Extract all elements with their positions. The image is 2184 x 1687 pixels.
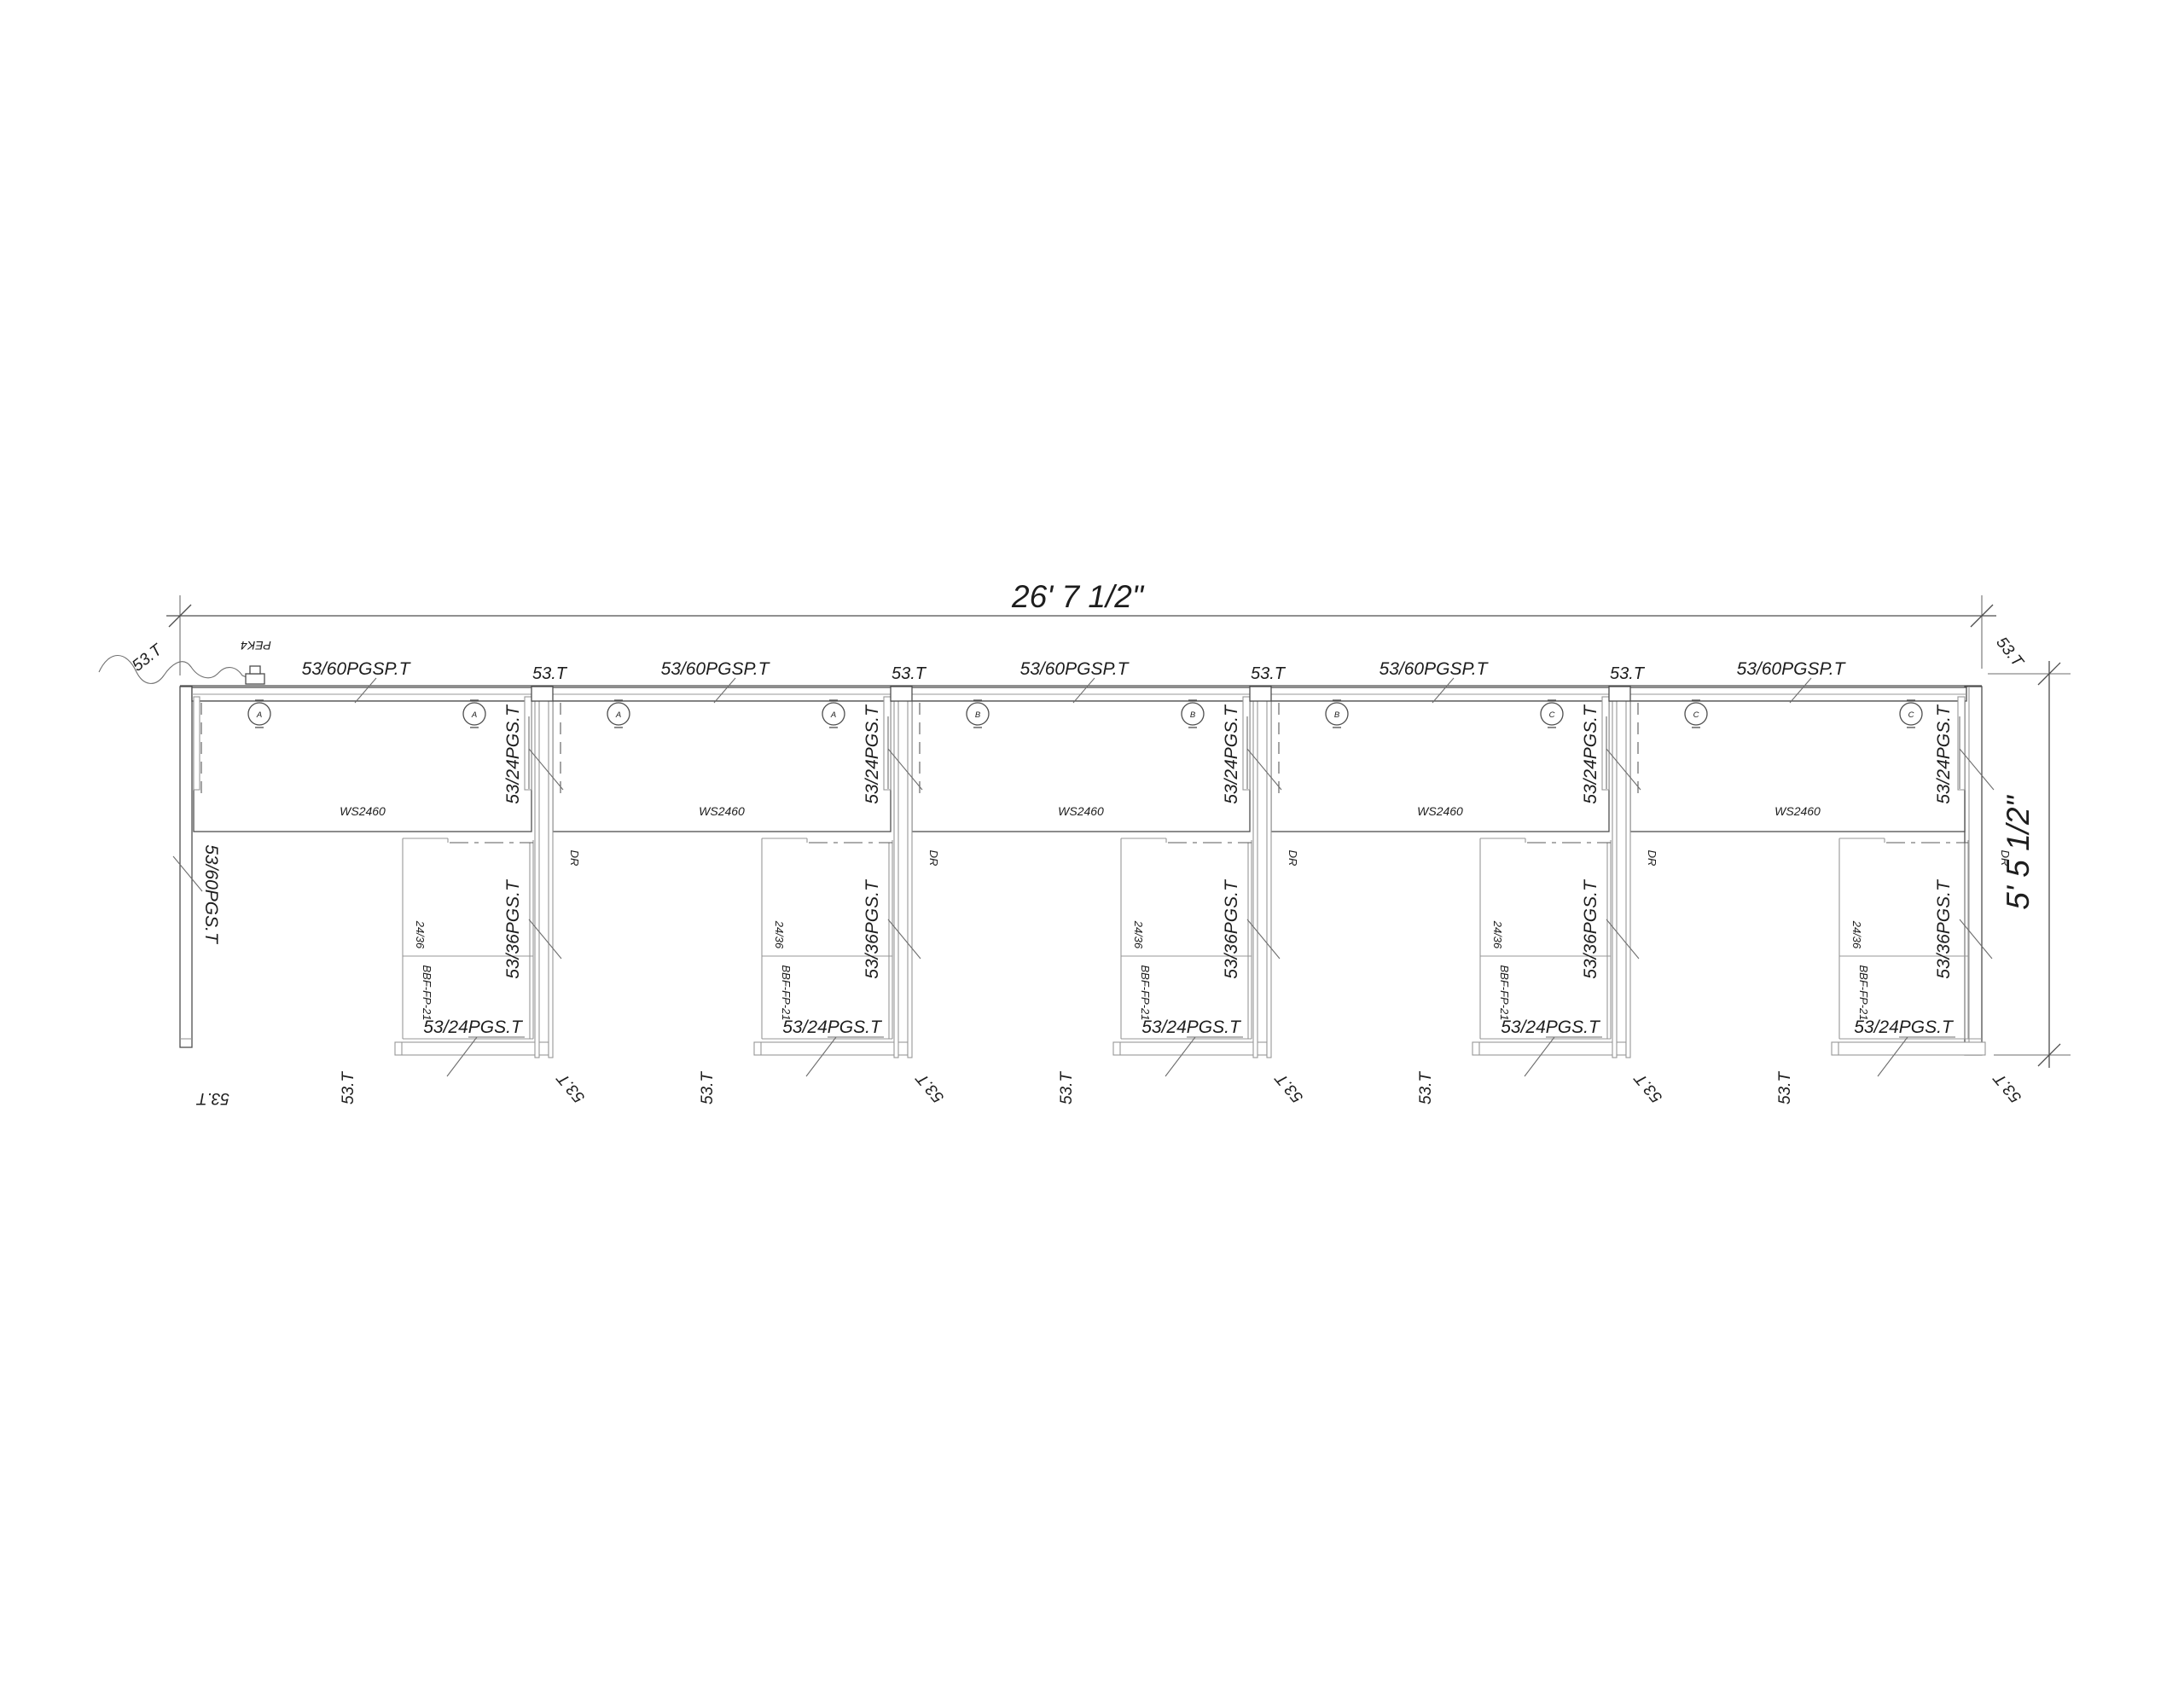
return-panel-label: 53/24PGS.T bbox=[423, 1017, 524, 1037]
divider-end bbox=[1243, 697, 1250, 790]
pedestal-box-label: 24/36 bbox=[1850, 920, 1863, 949]
bottom-connector-tag-mirror: 53.T bbox=[913, 1069, 948, 1106]
grommet-letter: B bbox=[1334, 710, 1340, 720]
divider-end bbox=[1958, 697, 1965, 790]
drawer-label: DR bbox=[927, 850, 940, 867]
drawer-label: DR bbox=[1646, 850, 1658, 867]
divider-upper-label: 53/24PGS.T bbox=[503, 704, 523, 804]
worksurface-label: WS2460 bbox=[1417, 804, 1463, 818]
top-panel-label: 53/60PGSP.T bbox=[302, 659, 412, 679]
divider-upper-label: 53/24PGS.T bbox=[863, 704, 882, 804]
power-entry-plug bbox=[250, 666, 260, 674]
divider-end bbox=[194, 697, 200, 790]
overall-depth-dim: 5' 5 1/2" bbox=[2001, 794, 2036, 909]
overall-width-dim: 26' 7 1/2" bbox=[1011, 579, 1145, 614]
bottom-connector-tag: 53.T bbox=[1776, 1071, 1794, 1104]
worksurface-label: WS2460 bbox=[699, 804, 745, 818]
bottom-connector-tag: 53.T bbox=[1058, 1071, 1076, 1104]
return-panel-label: 53/24PGS.T bbox=[1854, 1017, 1955, 1037]
grommet-letter: A bbox=[471, 710, 477, 720]
drawer-label: DR bbox=[1287, 850, 1299, 867]
divider-lower-label: 53/36PGS.T bbox=[503, 878, 523, 979]
leader bbox=[1247, 919, 1280, 959]
grommet-letter: A bbox=[830, 710, 836, 720]
grommet-letter: A bbox=[615, 710, 621, 720]
grommet-letter: B bbox=[975, 710, 981, 720]
divider-end bbox=[884, 697, 891, 790]
divider-panel bbox=[1612, 701, 1617, 1058]
power-entry-label: PEK4 bbox=[241, 639, 271, 652]
panel-connector bbox=[891, 687, 912, 701]
divider-upper-label: 53/24PGS.T bbox=[1581, 704, 1600, 804]
pedestal-file-label: BBF-FP-21 bbox=[1857, 965, 1870, 1020]
divider-upper-label: 53/24PGS.T bbox=[1222, 704, 1241, 804]
top-panel-label: 53/60PGSP.T bbox=[1737, 659, 1847, 679]
bottom-connector-tag: 53.T bbox=[1417, 1071, 1435, 1104]
bottom-connector-tag-mirror: 53.T bbox=[554, 1069, 589, 1106]
divider-panel bbox=[1267, 701, 1271, 1058]
cable-tag: 53.T bbox=[129, 641, 166, 675]
grommet-letter: B bbox=[1190, 710, 1196, 720]
pedestal-box-label: 24/36 bbox=[1491, 920, 1504, 949]
pedestal-box-label: 24/36 bbox=[773, 920, 786, 949]
divider-lower-label: 53/36PGS.T bbox=[1934, 878, 1954, 979]
divider-end bbox=[525, 697, 531, 790]
bottom-connector-tag-mirror: 53.T bbox=[1272, 1069, 1307, 1106]
grommet-letter: C bbox=[1908, 710, 1914, 720]
top-panel-label: 53/60PGSP.T bbox=[1380, 659, 1490, 679]
bottom-connector-tag-mirror: 53.T bbox=[1990, 1069, 2025, 1106]
grommet-letter: A bbox=[256, 710, 262, 720]
leader bbox=[888, 919, 921, 959]
return-panel bbox=[1832, 1042, 1985, 1055]
leader bbox=[1606, 919, 1639, 959]
bottom-connector-tag-mirror: 53.T bbox=[1631, 1069, 1666, 1106]
divider-lower-label: 53/36PGS.T bbox=[1222, 878, 1241, 979]
end-panel-right bbox=[1965, 687, 1982, 1055]
grommet-letter: C bbox=[1549, 710, 1555, 720]
pedestal-box-label: 24/36 bbox=[1132, 920, 1145, 949]
end-panel-label: 53/60PGS.T bbox=[201, 844, 221, 945]
workstation-plan-drawing: 26' 7 1/2"WS2460AA53/60PGSP.T24/36BBF-FP… bbox=[0, 0, 2184, 1687]
divider-panel bbox=[535, 701, 539, 1058]
connector-tag: 53.T bbox=[532, 664, 568, 683]
corner-connector-tag: 53.T bbox=[1992, 634, 2027, 671]
bottom-connector-tag: 53.T bbox=[196, 1089, 229, 1107]
divider-upper-label: 53/24PGS.T bbox=[1934, 704, 1954, 804]
divider-panel bbox=[1626, 701, 1630, 1058]
top-panel-label: 53/60PGSP.T bbox=[661, 659, 771, 679]
worksurface-label: WS2460 bbox=[1774, 804, 1821, 818]
connector-tag: 53.T bbox=[1251, 664, 1287, 683]
divider-panel bbox=[908, 701, 912, 1058]
panel-connector bbox=[1250, 687, 1271, 701]
divider-panel bbox=[894, 701, 898, 1058]
return-panel-label: 53/24PGS.T bbox=[1501, 1017, 1601, 1037]
bottom-connector-tag: 53.T bbox=[340, 1071, 357, 1104]
bottom-connector-tag: 53.T bbox=[699, 1071, 717, 1104]
panel-connector bbox=[531, 687, 553, 701]
pedestal-file-label: BBF-FP-21 bbox=[421, 965, 433, 1020]
divider-panel bbox=[549, 701, 553, 1058]
connector-tag: 53.T bbox=[892, 664, 927, 683]
panel-connector bbox=[1609, 687, 1630, 701]
drawer-label: DR bbox=[568, 850, 581, 867]
power-cable-icon bbox=[99, 656, 247, 684]
divider-lower-label: 53/36PGS.T bbox=[1581, 878, 1600, 979]
pedestal-file-label: BBF-FP-21 bbox=[780, 965, 793, 1020]
divider-end bbox=[1602, 697, 1609, 790]
pedestal-box-label: 24/36 bbox=[414, 920, 427, 949]
pedestal-file-label: BBF-FP-21 bbox=[1139, 965, 1152, 1020]
return-panel-label: 53/24PGS.T bbox=[782, 1017, 883, 1037]
return-panel-label: 53/24PGS.T bbox=[1141, 1017, 1242, 1037]
top-panel-label: 53/60PGSP.T bbox=[1020, 659, 1130, 679]
pedestal-file-label: BBF-FP-21 bbox=[1498, 965, 1511, 1020]
power-entry bbox=[246, 674, 264, 684]
divider-lower-label: 53/36PGS.T bbox=[863, 878, 882, 979]
leader bbox=[529, 919, 561, 959]
cad-canvas: 26' 7 1/2"WS2460AA53/60PGSP.T24/36BBF-FP… bbox=[0, 0, 2184, 1687]
connector-tag: 53.T bbox=[1610, 664, 1646, 683]
grommet-letter: C bbox=[1693, 710, 1699, 720]
divider-panel bbox=[1253, 701, 1258, 1058]
worksurface-label: WS2460 bbox=[340, 804, 386, 818]
worksurface-label: WS2460 bbox=[1058, 804, 1104, 818]
